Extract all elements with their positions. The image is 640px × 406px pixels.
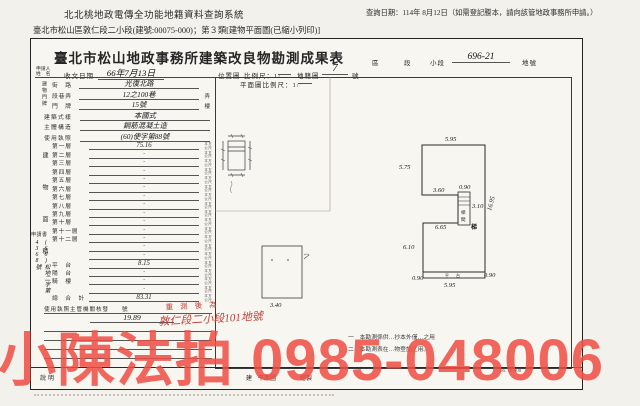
- scanned-survey-document-page: 北北桃地政電傳全功能地籍資料查詢系統 查詢日期：114年 8月12日（如需登記謄…: [0, 0, 640, 406]
- dim-bottom-left: 0.90: [412, 275, 424, 282]
- floor-value: ·: [89, 252, 199, 260]
- floor-value: ·: [89, 277, 199, 285]
- floor-unit: 平方公尺: [199, 143, 212, 150]
- floor-unit: 平方公尺: [199, 253, 212, 260]
- info-row: 建築式樣 本國式: [44, 110, 210, 121]
- info-row-value: 鋼筋混凝土造: [80, 122, 210, 131]
- application-note: 申請書: [31, 231, 48, 238]
- query-date: 查詢日期：114年 8月12日（如需登記謄本，請向該管地政事務所申請。）: [366, 8, 597, 18]
- info-row: 主體構造 鋼筋混凝土造: [44, 121, 210, 132]
- document-subtitle: 臺北市松山區敦仁段二小段(建號:00075-000)；第３類[建物平面圖(已縮小…: [33, 24, 320, 36]
- info-row-value: 本國式: [80, 112, 210, 121]
- stair-mark: 梯: [471, 223, 477, 231]
- floor-value: ·: [89, 201, 199, 209]
- info-row-value: (60)使字第88號: [80, 133, 210, 142]
- floor-label: 騎 樓: [52, 276, 89, 285]
- dim-stair-width: 0.90: [459, 184, 471, 191]
- floor-value: ·: [89, 218, 199, 226]
- unit-bottom: 公尺: [204, 206, 212, 210]
- cadastral-map-value: 7: [322, 62, 348, 75]
- info-rows: 建築式樣 本國式 主體構造 鋼筋混凝土造 使用執照 (60)使字第88號: [44, 110, 210, 142]
- dim-top: 5.95: [445, 136, 457, 143]
- subsection-label: 小段: [430, 57, 445, 67]
- middle-parcel-sketch: 3.40: [262, 246, 309, 309]
- dim-bottom: 5.95: [444, 282, 456, 289]
- unit-bottom: 公尺: [204, 257, 212, 261]
- bottom-band: [423, 272, 485, 278]
- section-label: 段: [404, 57, 412, 67]
- floor-unit: 平方公尺: [199, 152, 212, 159]
- floor-unit: 平方公尺: [199, 270, 212, 277]
- unit-bottom: 公尺: [204, 282, 212, 286]
- floor-unit: 平方公尺: [199, 287, 212, 294]
- address-rows: 街 路 光復北路 段巷弄 12之100巷 弄 門 牌 15號 樓: [52, 79, 210, 110]
- parcel-number-value: 696-21: [452, 52, 510, 63]
- address-row-label: 段巷弄: [52, 91, 79, 100]
- dim-right: 16.95: [486, 195, 497, 212]
- parcel-label: 地號: [522, 57, 537, 67]
- band-char-1: 平: [445, 273, 449, 278]
- address-row-value: 15號: [79, 101, 199, 110]
- address-row-value: 光復北路: [79, 80, 199, 89]
- auction-watermark: 小陳法拍 0985-048006: [0, 332, 604, 390]
- address-row: 街 路 光復北路: [52, 79, 210, 89]
- floor-value: 8.15: [89, 260, 199, 268]
- applicant-label: 申請人 姓 名: [36, 67, 50, 77]
- unit-bottom: 公尺: [204, 223, 212, 227]
- dim-step: 3.60: [432, 187, 445, 194]
- dim-stair-height: 3.10: [471, 203, 484, 210]
- address-row-label: 街 路: [52, 80, 79, 89]
- unit-bottom: 公尺: [204, 147, 212, 151]
- floor-unit: 平方公尺: [199, 262, 212, 269]
- floor-unit: 平方公尺: [199, 160, 212, 167]
- floor-label: 總 合 計: [52, 293, 89, 302]
- address-row: 門 牌 15號 樓: [52, 100, 210, 110]
- floor-value: ·: [89, 168, 199, 176]
- floor-unit: 平方公尺: [199, 228, 212, 235]
- floor-unit: 平方公尺: [199, 177, 212, 184]
- dim-mid-rect: 3.40: [269, 302, 282, 309]
- address-row-value: 12之100巷: [79, 91, 199, 100]
- location-sketch: [221, 134, 252, 193]
- address-group-label: 建物門牌: [40, 81, 47, 113]
- dim-bottom-right: 0.90: [484, 272, 496, 279]
- address-row-suffix: 弄: [199, 92, 210, 100]
- floor-unit: 平方公尺: [199, 186, 212, 193]
- address-row-suffix: 樓: [199, 102, 210, 110]
- application-number: (66)松地二字第4368號: [33, 240, 51, 302]
- floor-value: ·: [89, 286, 199, 294]
- floor-value: ·: [89, 176, 199, 184]
- dim-upper-left: 5.75: [399, 164, 411, 171]
- floor-value: ·: [89, 210, 199, 218]
- scan-noise-artifact: [34, 394, 334, 396]
- floor-value: ·: [89, 243, 199, 251]
- plan-cell-lines: [215, 77, 330, 211]
- floor-area-row: 騎 樓 · 平方公尺: [52, 277, 212, 285]
- unit-bottom: 公尺: [204, 240, 212, 244]
- main-building-outline: [422, 145, 485, 278]
- floor-unit: 平方公尺: [199, 236, 212, 243]
- stair-char-top: 梯: [461, 209, 466, 216]
- floor-value: ·: [89, 269, 199, 277]
- floor-value: ·: [89, 184, 199, 192]
- dim-mid: 6.65: [435, 224, 447, 231]
- floor-unit: 平方公尺: [199, 203, 212, 210]
- scale-blank: [278, 74, 291, 75]
- unit-bottom: 公尺: [204, 198, 212, 202]
- floor-value: ·: [89, 159, 199, 167]
- floor-unit: 平方公尺: [199, 245, 212, 252]
- floor-value: ·: [89, 193, 199, 201]
- floor-unit: 平方公尺: [199, 211, 212, 218]
- district-label: 區: [372, 57, 380, 67]
- info-row-label: 主體構造: [44, 122, 80, 131]
- address-row-label: 門 牌: [52, 101, 79, 110]
- form-title: 臺北市松山地政事務所建築改良物勘測成果表: [54, 47, 344, 67]
- unit-bottom: 公尺: [204, 164, 212, 168]
- floor-value: ·: [89, 151, 199, 159]
- unit-bottom: 公尺: [204, 181, 212, 185]
- header-divider-line: [35, 77, 215, 78]
- stair-char-bottom: 間: [461, 217, 466, 223]
- system-title: 北北桃地政電傳全功能地籍資料查詢系統: [64, 7, 244, 21]
- floor-unit: 平方公尺: [199, 194, 212, 201]
- floor-unit: 平方公尺: [199, 278, 212, 285]
- floor-value: ·: [89, 235, 199, 243]
- floor-area-row: 第十二層 · 平方公尺: [52, 235, 212, 243]
- floor-label: 第十二層: [52, 234, 89, 243]
- floor-area-table: 第一層 75.16 平方公尺 第二層 · 平方公尺 第三層 · 平方公尺 第四層…: [52, 142, 212, 302]
- info-row-label: 建築式樣: [44, 112, 80, 121]
- floor-area-row: · 平方公尺: [52, 243, 212, 251]
- address-row: 段巷弄 12之100巷 弄: [52, 89, 210, 99]
- band-char-2: 台: [456, 272, 460, 278]
- plan-dimension-labels: 5.95 5.75 3.60 0.90 3.10 6.65 16.95 6.10…: [399, 136, 497, 289]
- floor-value: ·: [89, 227, 199, 235]
- floor-unit: 平方公尺: [199, 219, 212, 226]
- floor-plan-drawing: 3.40 5.95 5.75 3.60 0.90 3.10 6.65 16.95…: [215, 77, 570, 367]
- floor-value: 75.16: [89, 142, 199, 150]
- floor-unit: 平方公尺: [199, 169, 212, 176]
- dim-lower-left: 6.10: [403, 244, 415, 251]
